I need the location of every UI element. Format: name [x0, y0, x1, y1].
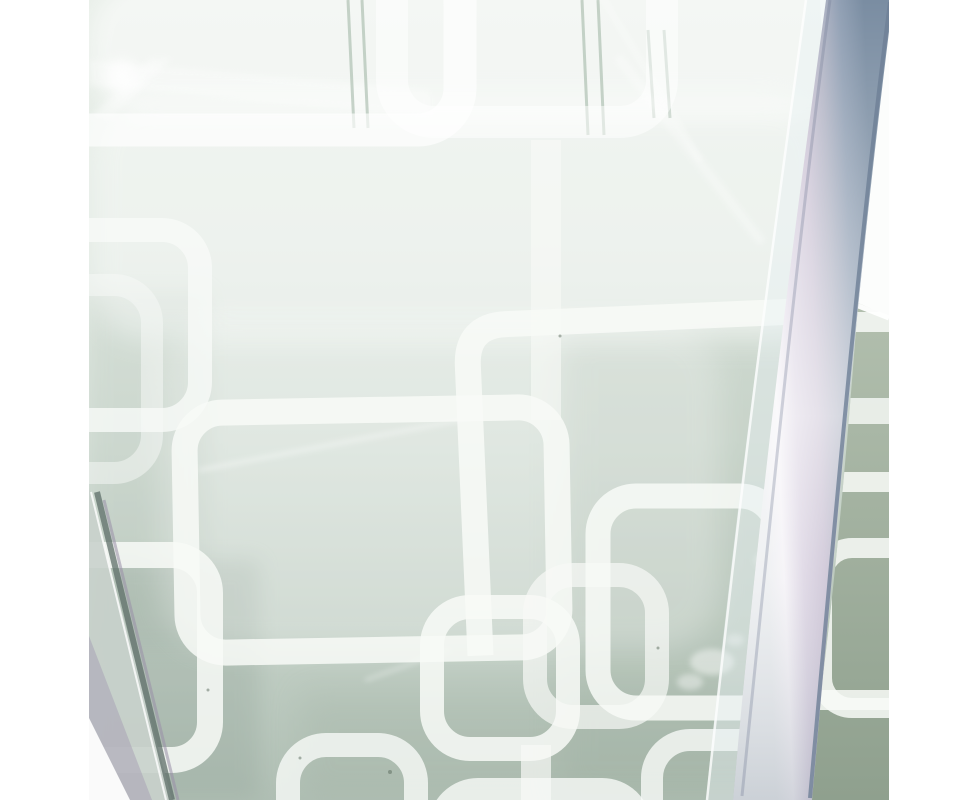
product-photo: [0, 0, 978, 800]
photo-svg: [0, 0, 978, 800]
white-margin-left: [0, 0, 89, 800]
white-margin-right: [889, 0, 978, 800]
photo-content: [0, 0, 978, 800]
